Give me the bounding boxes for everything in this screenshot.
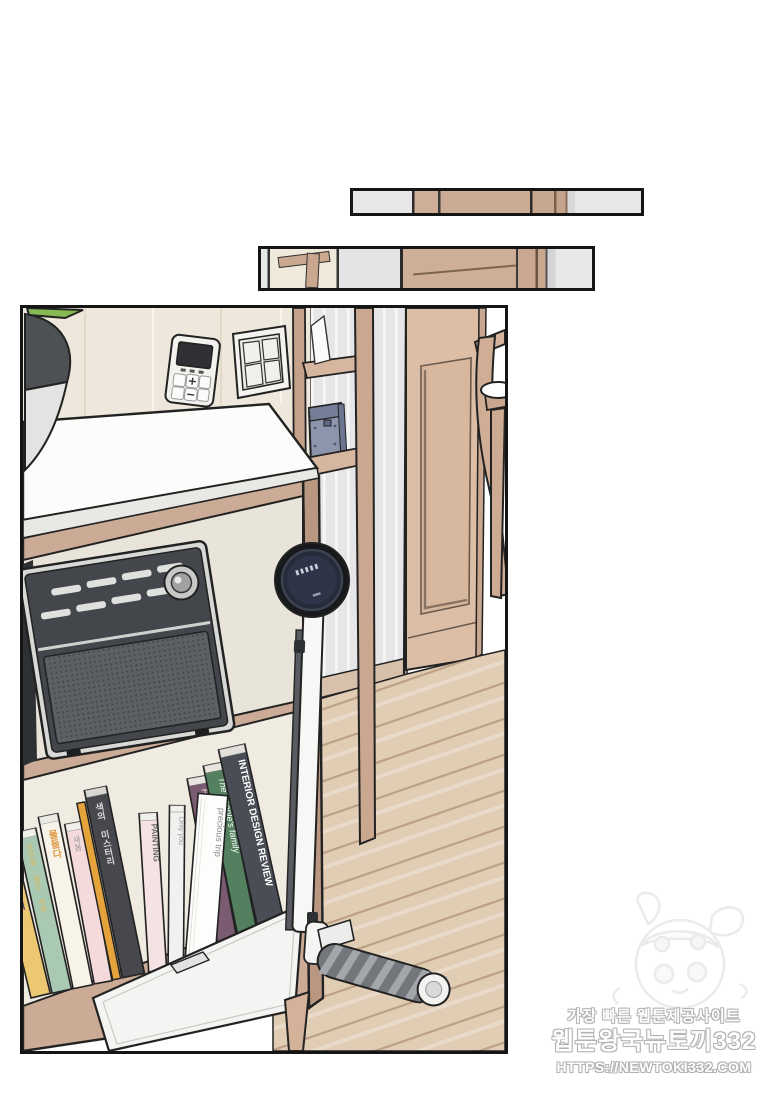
thermostat-screen bbox=[176, 342, 213, 369]
doorframe-bar-icon bbox=[277, 251, 330, 268]
episode-canvas: 국어의 정석 모두를 품은 하루 물들다 새봄 bbox=[0, 0, 760, 1098]
doorframe-post-icon bbox=[305, 253, 319, 289]
watermark-site-name: 웹툰왕국뉴토끼332 bbox=[540, 1027, 760, 1057]
door-top-seam bbox=[413, 265, 515, 276]
switch-rocker bbox=[262, 338, 279, 360]
wooden-door bbox=[406, 308, 486, 670]
svg-text:Only you: Only you bbox=[177, 816, 186, 844]
switch-rocker bbox=[264, 360, 281, 383]
thermostat bbox=[165, 334, 221, 407]
transition-strip-2 bbox=[258, 246, 595, 291]
chair-seat bbox=[481, 382, 505, 398]
vacuum-canister bbox=[275, 543, 349, 617]
switch-rocker bbox=[243, 341, 261, 364]
main-panel: 국어의 정석 모두를 품은 하루 물들다 새봄 bbox=[20, 305, 508, 1054]
watermark-tagline: 가장 빠른 웹툰제공사이트 bbox=[540, 1006, 760, 1027]
watermark-site-url: HTTPS://NEWTOKI332.COM bbox=[540, 1057, 760, 1077]
room-scene: 국어의 정석 모두를 품은 하루 물들다 새봄 bbox=[23, 308, 505, 1051]
light-switch bbox=[233, 326, 290, 398]
transition-strip-1 bbox=[350, 188, 644, 216]
vintage-radio bbox=[23, 540, 235, 759]
watermark: 가장 빠른 웹툰제공사이트 웹툰왕국뉴토끼332 HTTPS://NEWTOKI… bbox=[540, 1006, 760, 1077]
book-spine: Only you bbox=[168, 806, 186, 968]
switch-rocker bbox=[245, 363, 263, 387]
vacuum-clip bbox=[294, 640, 305, 653]
